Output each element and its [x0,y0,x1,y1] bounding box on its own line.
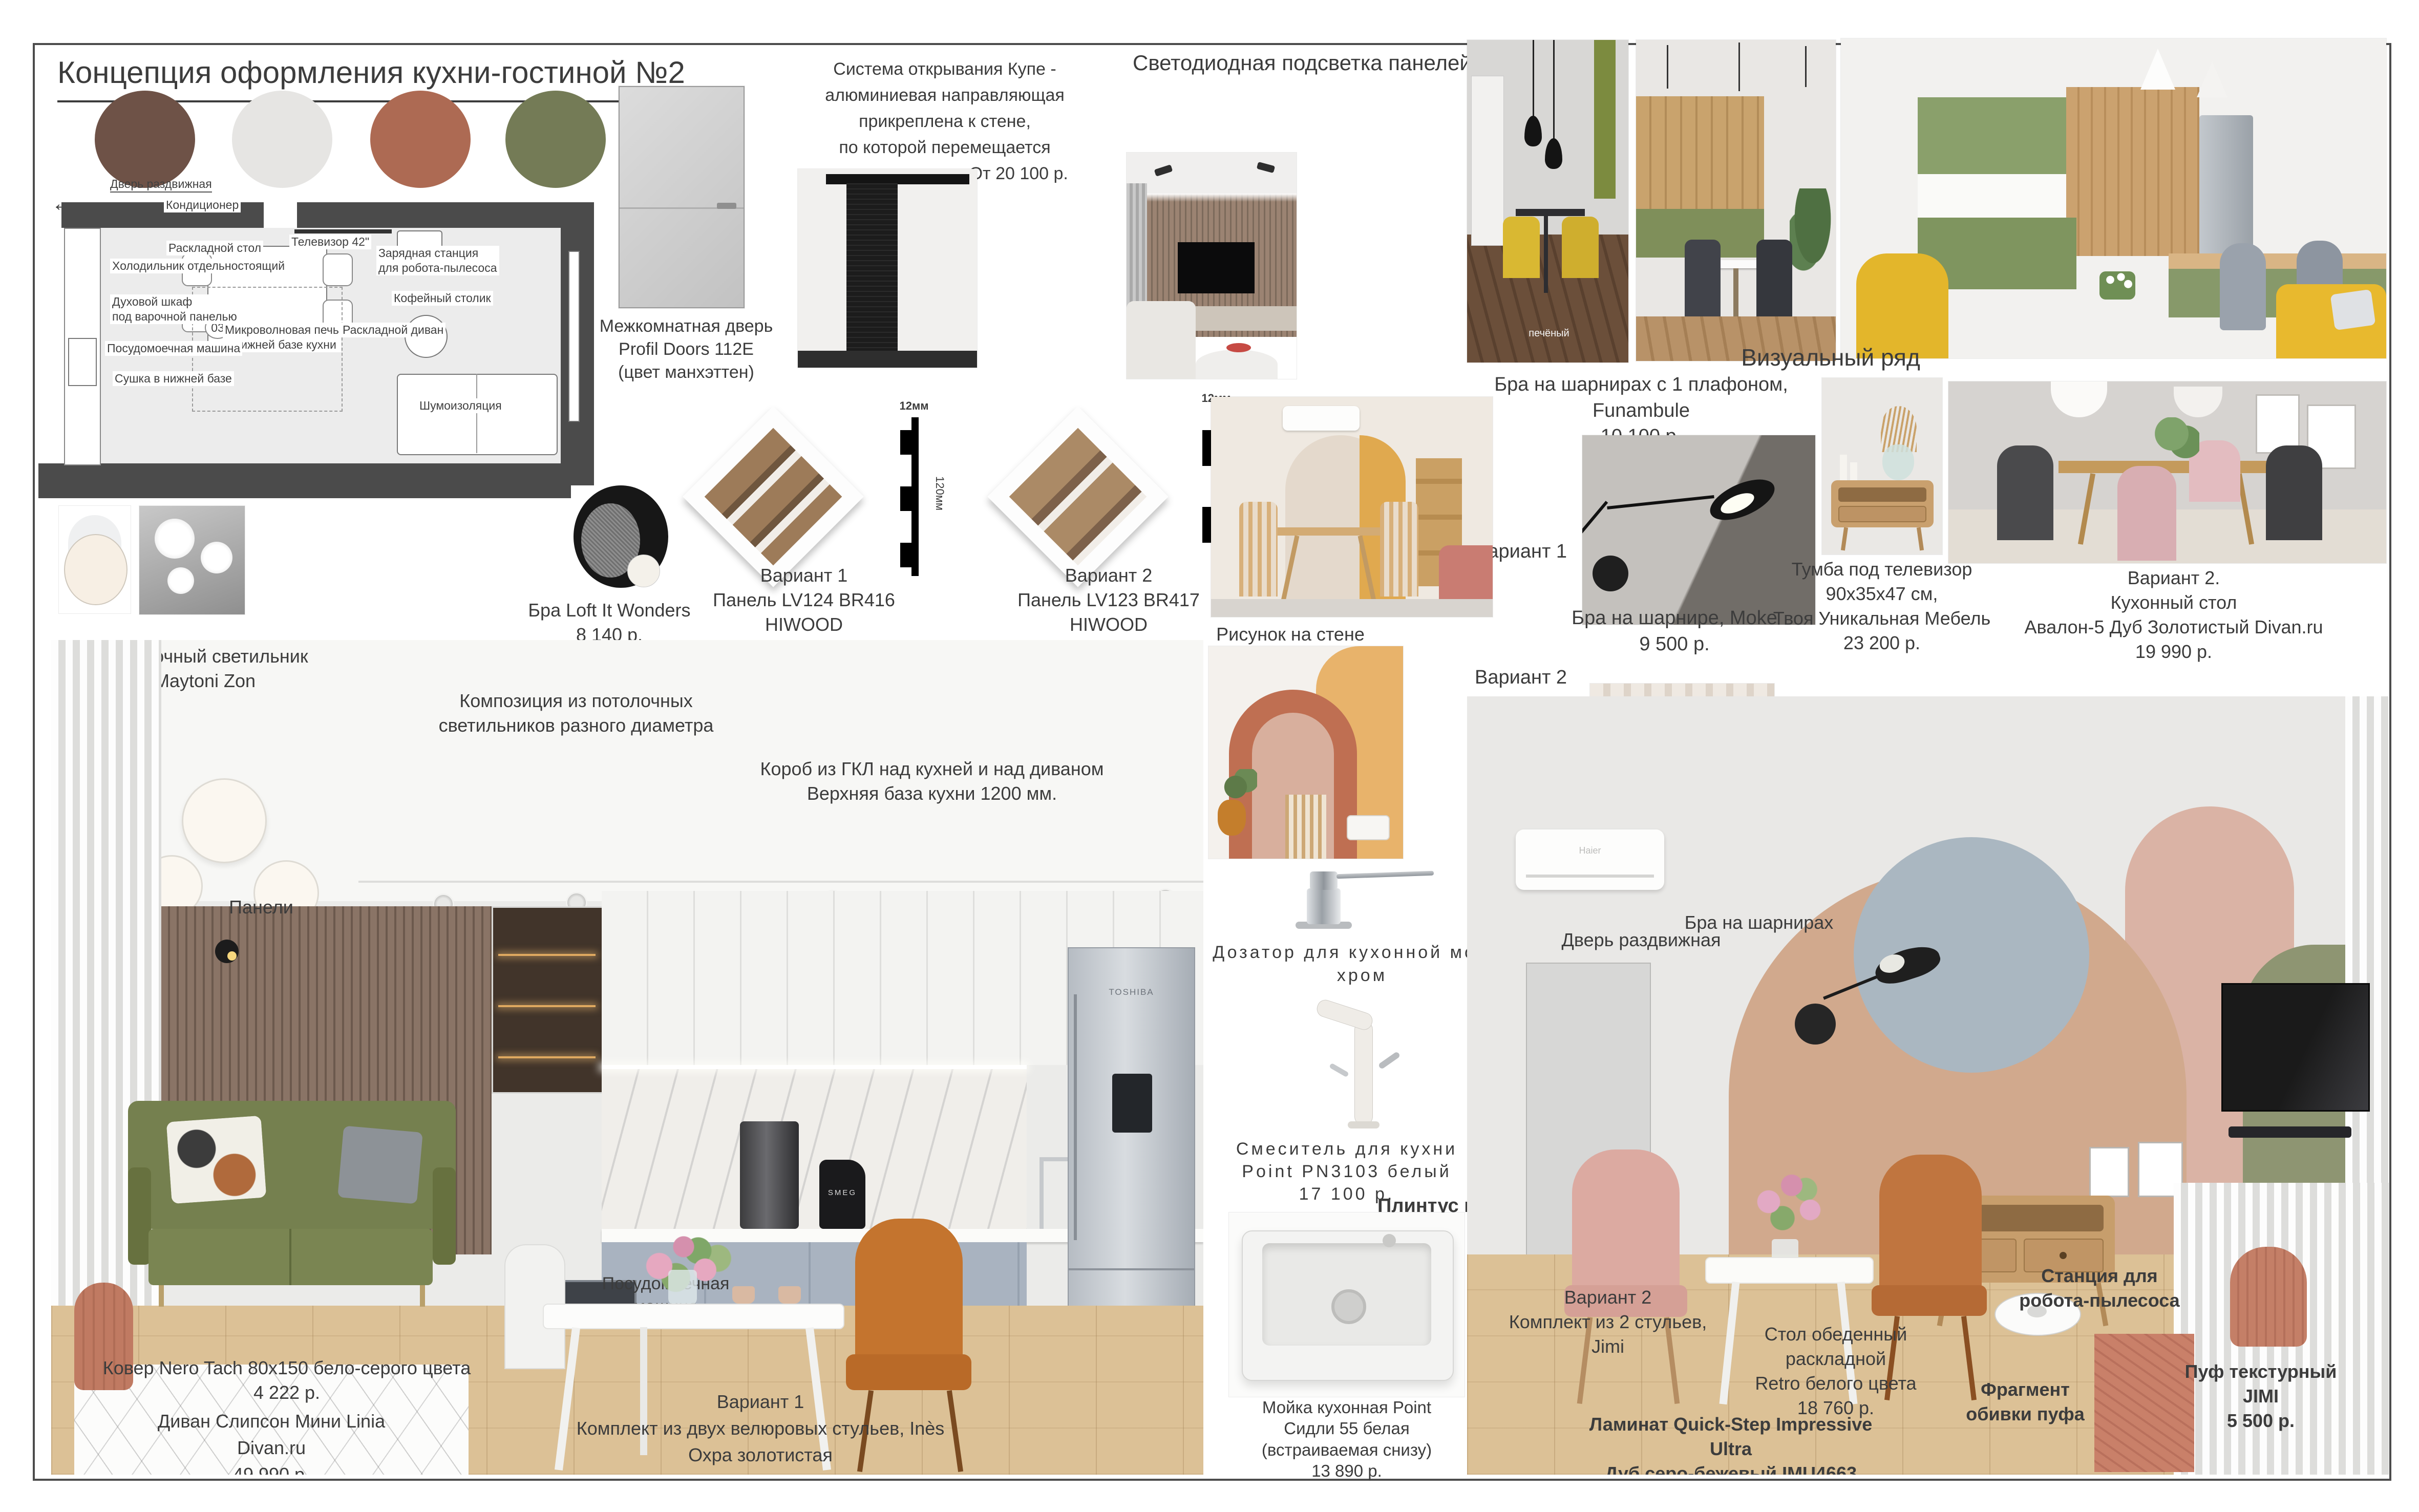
dining-table-top [543,1304,844,1329]
drum-light [155,519,195,559]
visual-photo-1: печёный [1467,40,1628,363]
sink-photo [1229,1212,1465,1397]
fridge-handle [1074,994,1077,1240]
faucet-arm [1314,998,1374,1032]
plan-label-robot-station: Зарядная станция для робота-пылесоса [376,246,499,275]
sconce-glow [227,951,237,961]
plan-label-ac: Кондиционер [164,198,241,212]
under-cabinet-light [602,1065,1027,1069]
panel-diamond [987,406,1169,587]
plan-chair [323,253,353,286]
console-leg [1841,527,1848,551]
watermark: печёный [1508,327,1590,340]
lamp-arm [1582,501,1608,562]
laminate-label: Ламинат Quick-Step Impressive Ultra Дуб … [1572,1412,1890,1475]
lamp-base [1593,556,1628,591]
panel-sample-2 [986,417,1170,576]
floor-plan: Дверь раздвижная ← 03 Кондиционер Телеви… [38,169,594,504]
led-title: Светодиодная подсветка панелей [1133,49,1472,77]
fridge [2199,115,2253,259]
pendant-cone [2140,49,2175,90]
sofa-arm [128,1167,151,1265]
retro-table-label: Стол обеденный раскладной Retro белого ц… [1713,1322,1959,1420]
dark-chair [1997,445,2053,540]
chairs-v1-label: Вариант 1 Комплект из двух велюровых сту… [545,1389,975,1475]
composition-label: Композиция из потолочных светильников ра… [417,689,735,738]
wood-table [1270,527,1388,536]
sink-drain [1331,1289,1366,1324]
ceiling-line [1805,46,1807,87]
plan-wall-top-right [297,202,563,228]
drawer-knob [2060,1252,2067,1259]
pillow-gray [337,1126,423,1204]
plan-label-dishwasher: Посудомоечная машина [105,341,242,356]
pendant-drop [1524,116,1542,146]
pouf-label: Пуф текстурный JIMI 5 500 р. [2169,1359,2353,1433]
chairs-v2-label: Вариант 2 Комплект из 2 стульев, Jimi [1495,1285,1721,1359]
dark-chair [2266,445,2322,540]
dispenser-head [1310,871,1338,890]
yellow-chair [1503,217,1540,278]
pillow-pattern [166,1116,267,1204]
coffee-machine [740,1121,799,1229]
drum-lamp [182,778,267,863]
candles [1850,462,1857,480]
right-render: Haier Дверь раздвижная Бра на шарнирах [1467,696,2389,1475]
pink-chair [2117,466,2176,561]
arch-dining-photo [1211,397,1493,617]
lit-shelf [498,1005,596,1007]
dark-table [1516,209,1585,216]
plant [1790,188,1836,275]
pendant-drop [1545,138,1562,169]
sink-label: Мойка кухонная Point Сидли 55 белая (вст… [1229,1397,1465,1481]
visual-photo-3 [1841,38,2386,358]
tvstand-label: Тумба под телевизор 90х35х47 см, Твоя Ун… [1772,557,1992,655]
wood-wall [1636,96,1764,209]
drum-light [167,567,194,594]
plan-label-noise: Шумоизоляция [417,398,504,413]
flower-bouquet [1741,1165,1833,1247]
lit-shelf [498,1056,596,1058]
ac-unit [1283,406,1360,431]
coffee-table [1196,350,1278,379]
spindle-chair [1285,795,1326,859]
door-rail [826,174,969,184]
wall-frame [2256,394,2300,454]
photo-floor [1211,599,1493,617]
cup [778,1286,801,1304]
console-leg [1917,527,1924,551]
interior-door-image [619,86,745,308]
sofa-leg [420,1285,425,1307]
table-leg [1544,216,1548,293]
white-table-top [1705,1257,1874,1284]
led-glow [1147,194,1297,202]
textured-pouf [2230,1247,2307,1347]
interior-door-label: Межкомнатная дверь Profil Doors 112E (цв… [579,315,794,385]
dispenser-body [1307,888,1341,924]
sofa-leg [159,1285,164,1307]
haier-text: Haier [1564,845,1616,857]
pendant-cone [2197,61,2227,97]
profile-tooth [900,486,911,511]
sofa-product-label: Диван Слипсон Мини Linia Divan.ru 49 990… [113,1408,430,1475]
plan-label-fridge: Холодильник отдельностоящий [110,259,287,273]
wall-art-label: Рисунок на стене [1193,622,1388,647]
bar-counter [2169,253,2386,269]
panels-label: Панели [195,895,328,920]
profile-bar [911,417,919,576]
orange-chair-back [1879,1155,1982,1301]
counter-faucet [1039,1157,1044,1229]
tulips [2099,271,2135,300]
slat-sconce [215,940,239,963]
plan-label-dryer: Сушка в нижней базе [113,371,234,386]
plan-hob [68,338,97,386]
faucet-handle [1329,1063,1349,1078]
photo-ceiling [1127,153,1297,194]
door-handle [717,203,736,209]
ceiling-lamps-photo [139,506,245,614]
marble-backsplash [602,1065,1027,1229]
yellow-chair [1562,217,1599,278]
rug-label: Ковер Nero Tach 80х150 бело-серого цвета… [69,1356,504,1405]
kitchen-table-v2-label: Вариант 2. Кухонный стол Авалон-5 Дуб Зо… [2007,566,2340,664]
photo-floor [798,351,977,368]
candles [1840,455,1847,480]
ceiling-line [1738,42,1740,91]
faucet-body [1354,1021,1373,1125]
sofa-white [1127,301,1196,379]
pendant-stem [1553,40,1555,140]
visual-row-title: Визуальный ряд [1718,342,1943,373]
fabric-label: Фрагмент обивки пуфа [1954,1377,2097,1426]
sofa-arm [433,1167,456,1265]
soundbar [2229,1126,2351,1138]
green-panel [1594,40,1616,199]
wall-art-photo [1208,646,1403,859]
glass-vase [1882,444,1914,480]
glass-cabinet [492,906,605,1094]
spindle-chair [1239,502,1278,597]
orange-chair-seat [1872,1285,1987,1316]
spindle-chair [1380,502,1418,597]
sconce-globe [627,555,660,587]
panel-slats [705,428,842,566]
tile-backsplash [1918,174,2066,218]
pink-chair-back [1572,1149,1680,1301]
panel-profile-1 [891,417,937,576]
arch-sconce-base [1795,1004,1836,1045]
plan-wall-bottom [38,463,594,498]
plan-label-table: Раскладной стол [166,241,263,255]
toshiba-text: TOSHIBA [1097,987,1166,998]
white-radio [1347,815,1390,840]
greenery [2153,417,2199,458]
vase-plant [1218,800,1246,836]
smeg-text: SMEG [819,1188,865,1198]
glass-vase [668,1270,697,1306]
dark-door-leaf [846,183,898,352]
plan-tv [294,229,392,233]
dim-120mm: 120мм [932,476,947,510]
sink-tap-hole [1383,1234,1396,1247]
visual-photo-2 [1636,40,1836,361]
led-livingroom-photo [1127,153,1297,379]
lamp-arm [1607,495,1714,509]
ac-vent [1526,875,1654,878]
orange-chair-back [855,1219,963,1367]
faucet-handle [1378,1051,1401,1070]
orange-chair-seat [846,1354,971,1390]
drum-light [201,542,232,573]
lit-shelf [498,954,596,956]
plan-window-slot [568,251,580,422]
plan-sofa [397,374,558,455]
green-upper-cabinets [1918,97,2066,174]
robot-station-label: Станция для робота-пылесоса [1997,1264,2202,1313]
pendant-stem [1533,40,1534,117]
fridge-display [1112,1074,1152,1133]
mixer-photo [1301,991,1429,1134]
bar-stool [2220,243,2266,330]
pillow [2330,289,2376,330]
plan-label-sofa: Раскладной диван [341,323,445,337]
fridge-split [1069,1268,1194,1270]
panel-sample-1 [681,417,865,576]
tv-screen [2221,983,2370,1112]
dispenser-spout [1336,871,1434,879]
moke-label: Бра на шарнире, Moke 9 500 р. [1536,605,1813,657]
loft-wonders-image [571,485,671,598]
tv-screen [1178,242,1255,293]
sofa-seat-split [289,1229,291,1285]
dispenser-photo [1270,865,1449,937]
hinged-sconce-label: Бра на шарнирах [1662,910,1856,935]
console-shelf [1838,487,1926,502]
variant2-wall-lamp: Вариант 2 [1475,665,1587,691]
dim-12mm: 12мм [888,398,940,413]
console-drawers [1838,506,1926,522]
faucet-base [1348,1121,1380,1128]
profile-tooth [900,430,911,455]
sliding-door-photo [798,169,977,368]
tvstand-photo [1822,378,1942,555]
panel-diamond [683,406,864,587]
pendant-dome [2051,381,2107,417]
kitchen-table-v2-photo [1948,381,2386,563]
bulkhead-edge [358,881,1203,883]
sliding-system-text: Система открывания Купе - алюминиевая на… [778,56,1111,187]
left-render: Потолочный светильник Maytoni Zon Композ… [51,640,1203,1475]
concept-board: { "title":"Концепция оформления кухни-го… [0,0,2419,1512]
plan-label-oven: Духовой шкаф под варочной панелью [110,294,239,324]
maytoni-zon-image [59,506,131,613]
white-door [1471,76,1504,246]
ac-unit: Haier [1516,829,1664,890]
lamp-cylinder-face [64,534,128,605]
ceiling-line [1667,45,1668,89]
counter-faucet-arm [1039,1157,1068,1161]
wood-cabinets [2066,87,2199,256]
plan-label-sliding-door: Дверь раздвижная [110,177,212,193]
plant-leaves [1221,769,1257,805]
plan-sofa-split [476,374,477,453]
plan-label-tv: Телевизор 42" [289,235,371,249]
wall-frame [2089,1147,2129,1197]
pendant-dome [2174,387,2222,417]
plan-label-coffee: Кофейный столик [392,291,493,306]
cup [732,1286,755,1304]
panel-slats [1009,428,1147,566]
fruit-bowl [1226,343,1251,352]
gkl-label: Короб из ГКЛ над кухней и над диваном Ве… [758,757,1106,806]
